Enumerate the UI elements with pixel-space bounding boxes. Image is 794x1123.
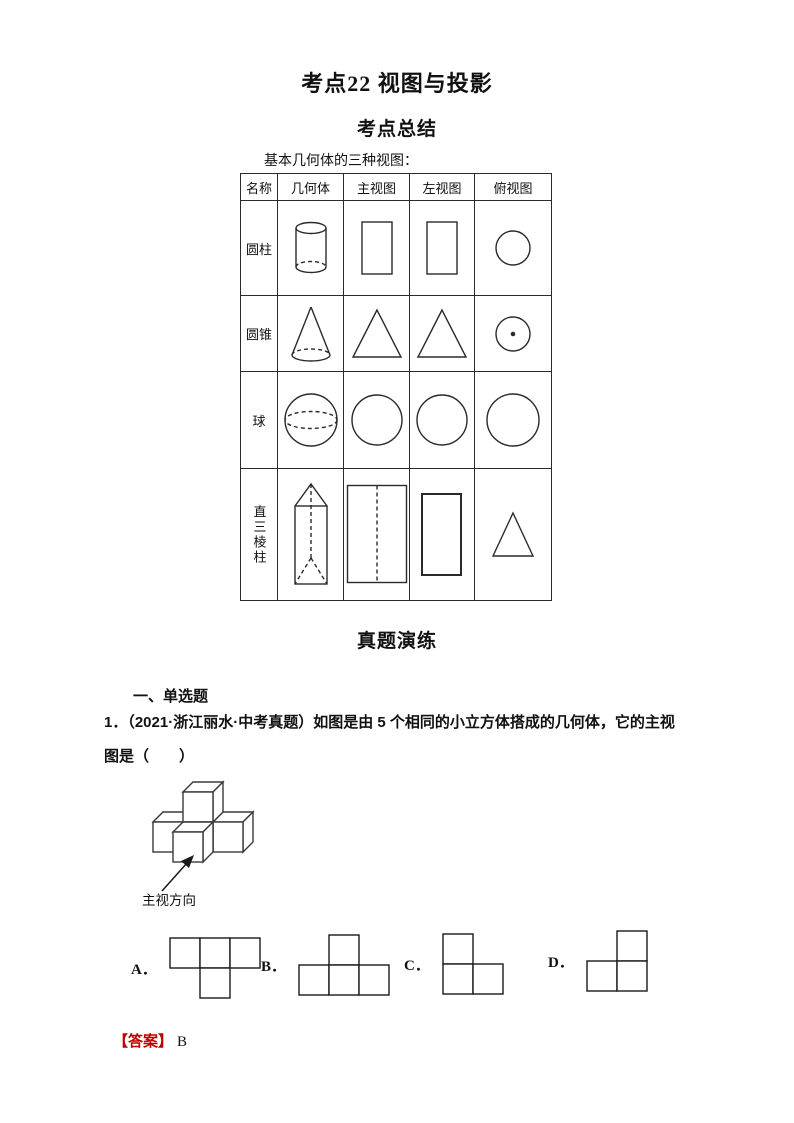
row-name-sphere: 球 [241, 372, 278, 469]
page-subtitle: 考点总结 [0, 114, 794, 141]
answer-label: 【答案】 [113, 1034, 173, 1050]
row-name-cylinder: 圆柱 [241, 201, 278, 296]
table-row-cone: 圆锥 [241, 296, 552, 372]
header-solid: 几何体 [278, 174, 344, 201]
option-c-figure [442, 933, 505, 996]
sphere-side-view-icon [414, 392, 470, 448]
prism-side-view-icon [420, 492, 464, 578]
table-header-row: 名称 几何体 主视图 左视图 俯视图 [241, 174, 552, 201]
page-title: 考点22 视图与投影 [0, 66, 794, 98]
question-text: 如图是由 5 个相同的小立方体搭成的几何体，它的主视 [313, 714, 675, 731]
right-cube-front-face [213, 822, 243, 852]
cylinder-side-view-icon [424, 220, 460, 276]
three-views-table: 名称 几何体 主视图 左视图 俯视图 圆柱 圆锥 [240, 173, 552, 601]
cylinder-3d-icon [293, 220, 329, 276]
view-direction-arrow [162, 863, 187, 891]
subsection-heading: 一、单选题 [133, 685, 208, 706]
table-row-sphere: 球 [241, 372, 552, 469]
option-d-label: D． [548, 951, 574, 972]
sphere-top-view-icon [484, 391, 542, 449]
section-title: 真题演练 [0, 626, 794, 653]
cylinder-front-view-icon [359, 220, 395, 276]
header-front-view: 主视图 [344, 174, 410, 201]
option-c: C． [404, 933, 505, 996]
document-page: 考点22 视图与投影 考点总结 基本几何体的三种视图： 名称 几何体 主视图 左… [0, 0, 794, 1123]
table-caption: 基本几何体的三种视图： [264, 150, 418, 170]
cone-side-view-icon [416, 308, 468, 360]
triangular-prism-3d-icon [284, 480, 338, 590]
table-row-cylinder: 圆柱 [241, 201, 552, 296]
option-b-figure [298, 934, 391, 997]
option-d-figure [586, 930, 649, 993]
sphere-3d-icon [282, 391, 340, 449]
header-top-view: 俯视图 [475, 174, 552, 201]
top-cube-front-face [183, 792, 213, 822]
prism-front-view-icon [346, 484, 408, 585]
option-d: D． [548, 930, 649, 993]
option-b: B． [261, 934, 391, 997]
row-name-prism: 直三棱柱 [241, 469, 278, 601]
question-1-line-1: 1．（2021·浙江丽水·中考真题）如图是由 5 个相同的小立方体搭成的几何体，… [104, 711, 675, 732]
option-a-label: A． [131, 958, 157, 979]
cube-stack-figure: 主视方向 [120, 772, 342, 912]
prism-top-view-icon [489, 510, 537, 560]
question-number: 1． [104, 714, 127, 731]
option-c-label: C． [404, 954, 430, 975]
option-a: A． [131, 937, 262, 1000]
option-b-label: B． [261, 955, 286, 976]
cone-front-view-icon [351, 308, 403, 360]
cone-3d-icon [288, 304, 334, 364]
header-side-view: 左视图 [410, 174, 475, 201]
option-a-figure [169, 937, 262, 1000]
answer-value: B [177, 1034, 187, 1050]
cone-top-view-icon [493, 314, 533, 354]
table-row-prism: 直三棱柱 [241, 469, 552, 601]
sphere-front-view-icon [349, 392, 405, 448]
answer-line: 【答案】B [113, 1030, 187, 1051]
front-cube-front-face [173, 832, 203, 862]
question-1-line-2: 图是（ ） [104, 745, 194, 766]
row-name-cone: 圆锥 [241, 296, 278, 372]
cylinder-top-view-icon [493, 228, 533, 268]
view-direction-label: 主视方向 [142, 893, 196, 908]
header-name: 名称 [241, 174, 278, 201]
question-source: （2021·浙江丽水·中考真题） [127, 714, 313, 731]
